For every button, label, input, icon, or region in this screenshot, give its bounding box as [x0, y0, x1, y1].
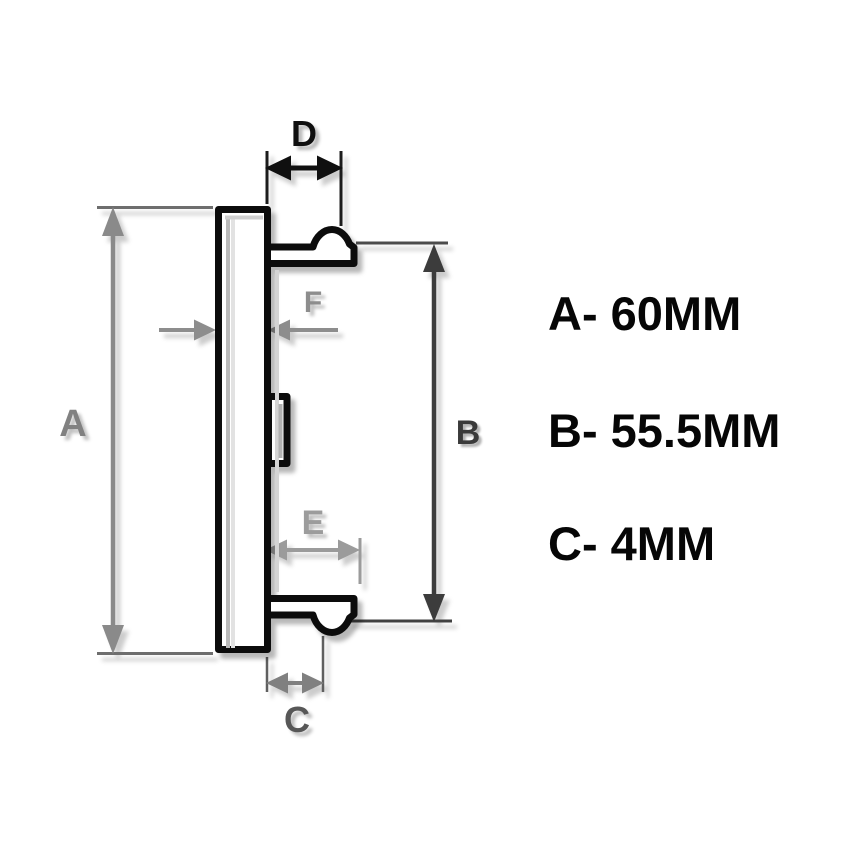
arrowhead-right-icon: [317, 156, 343, 181]
arrowhead-right-icon: [338, 540, 360, 561]
dim-label-e: E: [302, 506, 325, 540]
center-cap-profile: [219, 210, 355, 650]
spec-line-a: A- 60MM: [548, 290, 741, 337]
arrowhead-right-icon: [302, 673, 324, 694]
dim-c-arrow: [266, 636, 324, 694]
dim-e-arrow: [265, 538, 360, 584]
arrowhead-left-icon: [266, 673, 288, 694]
wheel-cap-dimension-diagram: A B C D E F A- 60MM B- 55.5MM C- 4MM: [0, 0, 850, 842]
dim-label-b: B: [456, 416, 481, 450]
arrowhead-up-icon: [423, 244, 445, 272]
dim-label-a: A: [59, 405, 86, 443]
dim-b-arrow: [348, 243, 452, 622]
spec-line-c: C- 4MM: [548, 520, 715, 567]
dim-label-f: F: [304, 288, 322, 318]
top-clip: [262, 230, 354, 264]
dim-label-d: D: [291, 116, 317, 152]
dim-label-c: C: [284, 702, 310, 738]
arrowhead-up-icon: [102, 207, 124, 236]
arrowhead-left-icon: [265, 156, 291, 181]
bottom-clip: [262, 599, 354, 633]
spec-line-b: B- 55.5MM: [548, 407, 780, 454]
dim-a-arrow: [97, 207, 213, 654]
arrowhead-right-icon: [194, 320, 216, 341]
cap-face: [219, 210, 268, 650]
dim-d-arrow: [265, 151, 343, 226]
arrowhead-down-icon: [102, 625, 124, 654]
arrowhead-down-icon: [423, 594, 445, 622]
